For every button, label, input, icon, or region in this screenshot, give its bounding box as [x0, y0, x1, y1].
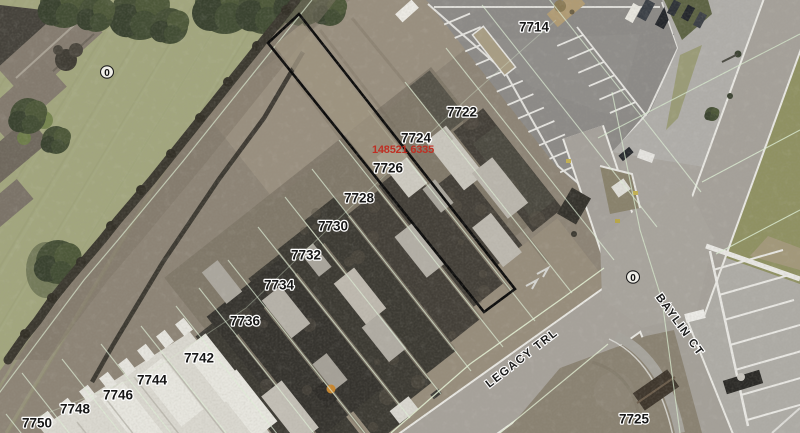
svg-text:7730: 7730: [318, 219, 348, 234]
svg-text:7746: 7746: [103, 388, 134, 403]
svg-text:7726: 7726: [373, 161, 404, 176]
svg-text:0: 0: [630, 273, 636, 284]
svg-text:148521 6335: 148521 6335: [372, 144, 434, 156]
svg-text:0: 0: [104, 68, 110, 79]
svg-text:7714: 7714: [519, 20, 550, 35]
svg-text:7732: 7732: [291, 248, 321, 263]
svg-text:7748: 7748: [60, 402, 91, 417]
svg-text:7728: 7728: [344, 191, 375, 206]
svg-text:7734: 7734: [264, 278, 295, 293]
svg-text:7725: 7725: [619, 412, 650, 427]
svg-text:7736: 7736: [230, 314, 261, 329]
svg-text:7722: 7722: [447, 105, 477, 120]
svg-text:7744: 7744: [137, 373, 168, 388]
svg-text:7742: 7742: [184, 351, 214, 366]
svg-text:7750: 7750: [22, 416, 52, 431]
